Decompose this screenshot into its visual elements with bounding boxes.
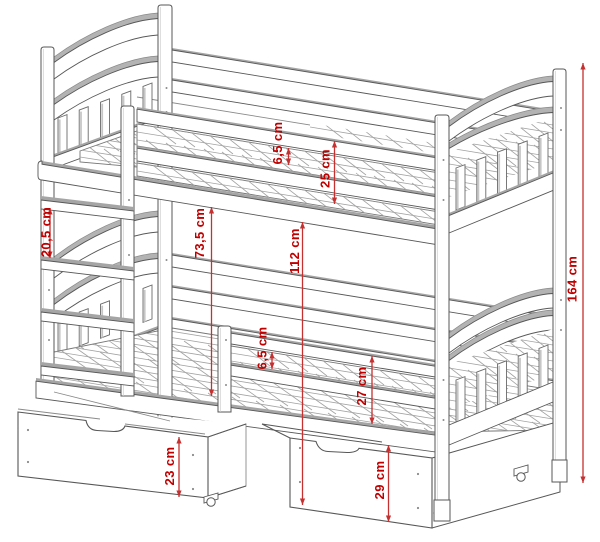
svg-text:25 cm: 25 cm — [317, 149, 332, 188]
svg-text:20,5 cm: 20,5 cm — [39, 207, 54, 258]
svg-text:73,5 cm: 73,5 cm — [192, 208, 207, 259]
svg-text:112 cm: 112 cm — [287, 228, 302, 274]
svg-text:23 cm: 23 cm — [162, 447, 177, 486]
svg-text:164 cm: 164 cm — [564, 256, 579, 303]
svg-text:29 cm: 29 cm — [372, 461, 387, 500]
svg-text:6,5 cm: 6,5 cm — [254, 327, 269, 370]
svg-text:6,5 cm: 6,5 cm — [270, 122, 285, 165]
svg-text:27 cm: 27 cm — [354, 367, 369, 406]
